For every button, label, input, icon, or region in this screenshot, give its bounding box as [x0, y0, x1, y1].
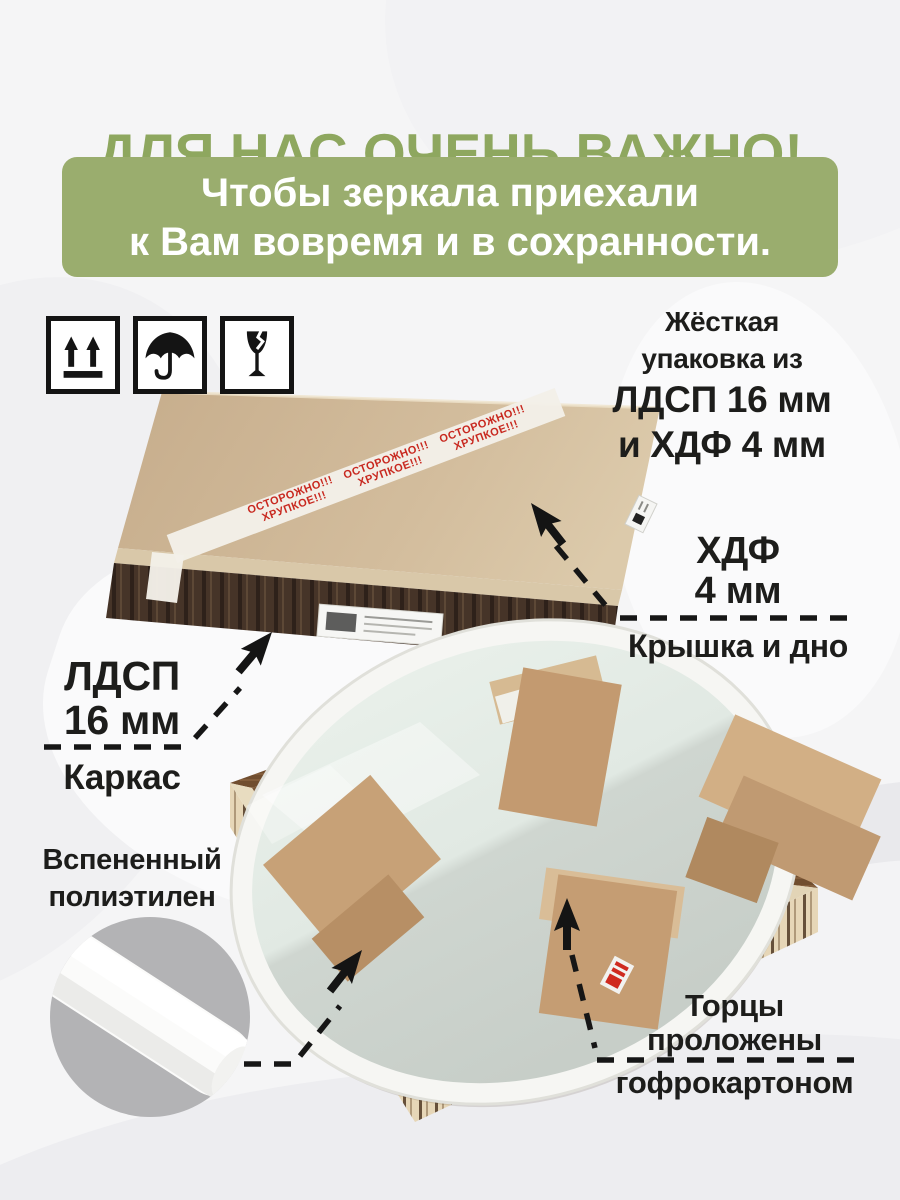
- label-line: и ХДФ 4 мм: [592, 422, 852, 467]
- label-line: ЛДСП: [36, 654, 208, 698]
- label-ldsp-frame: ЛДСП 16 мм Каркас: [36, 654, 208, 797]
- banner-line-2: к Вам вовремя и в сохранности.: [129, 220, 771, 264]
- label-line: Вспененный: [22, 842, 242, 879]
- label-line: полиэтилен: [22, 879, 242, 916]
- label-line: ЛДСП 16 мм: [592, 377, 852, 422]
- label-line: 16 мм: [36, 698, 208, 742]
- handling-icons: [46, 316, 294, 394]
- foam-tube-photo: [5, 905, 267, 1117]
- label-line: Торцы: [582, 989, 887, 1023]
- subtitle-banner: Чтобы зеркала приехали к Вам вовремя и в…: [62, 157, 838, 277]
- label-line: 4 мм: [618, 571, 858, 611]
- this-way-up-icon: [46, 316, 120, 394]
- label-foam: Вспененный полиэтилен: [22, 842, 242, 916]
- label-caption: Каркас: [36, 759, 208, 797]
- label-line: ХДФ: [618, 531, 858, 571]
- label-hdf-cover: ХДФ 4 мм Крышка и дно: [618, 531, 858, 664]
- label-edges-cardboard: Торцы проложены гофрокартоном: [582, 989, 887, 1100]
- label-caption: Крышка и дно: [618, 628, 858, 664]
- poster-root: ОСТОРОЖНО!!! ХРУПКОЕ!!! ОСТОРОЖНО!!! ХРУ…: [0, 0, 900, 1200]
- label-line: упаковка из: [592, 340, 852, 377]
- banner-line-1: Чтобы зеркала приехали: [201, 171, 699, 215]
- label-line: Жёсткая: [592, 303, 852, 340]
- label-line: проложены: [582, 1023, 887, 1057]
- keep-dry-icon: [133, 316, 207, 394]
- label-line: гофрокартоном: [582, 1066, 887, 1100]
- label-rigid-packaging: Жёсткая упаковка из ЛДСП 16 мм и ХДФ 4 м…: [592, 303, 852, 467]
- fragile-icon: [220, 316, 294, 394]
